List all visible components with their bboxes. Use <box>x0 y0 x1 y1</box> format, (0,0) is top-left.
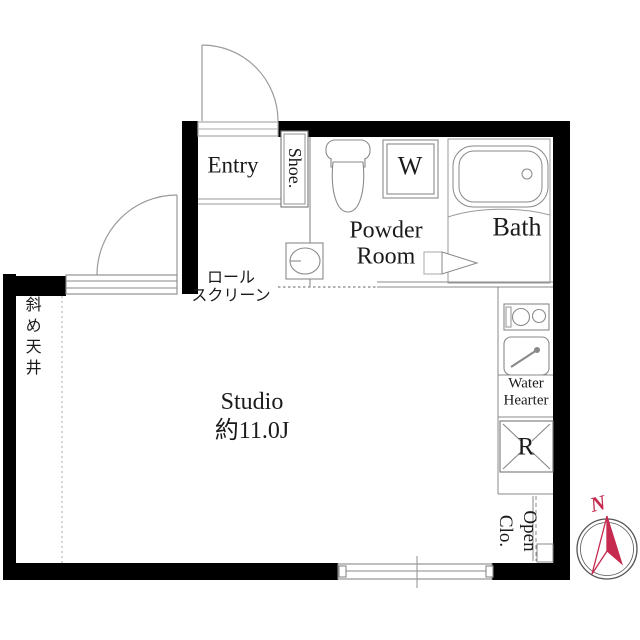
bath-label: Bath <box>492 214 541 243</box>
water-heater-label-line1: Water <box>504 376 549 393</box>
stove-burner-right <box>533 310 546 323</box>
wall-bottom-left <box>3 563 338 580</box>
bathtub-inner <box>459 151 542 202</box>
floor-plan: Entry Shoe. W Powder Room Bath Studio 約1… <box>0 0 640 640</box>
open-closet-label-line1: Open <box>517 510 541 551</box>
powder-room-label-line1: Powder <box>349 218 422 244</box>
compass-icon <box>577 516 637 579</box>
water-heater-label: Water Hearter <box>504 376 549 409</box>
toilet-tank <box>326 140 370 160</box>
toilet-icon <box>326 140 370 212</box>
refrigerator-label: R <box>518 433 535 461</box>
washing-machine-label: W <box>398 153 423 182</box>
stove-icon <box>504 304 549 330</box>
open-closet-label-line2: Clo. <box>493 510 517 551</box>
sink-icon <box>504 337 549 375</box>
compass-needle-outline <box>592 516 607 574</box>
stove-burner-left <box>513 309 530 326</box>
roll-screen-label-line2: スクリーン <box>191 288 270 306</box>
wall-bottom-right <box>492 563 570 580</box>
toilet-bowl <box>332 162 363 212</box>
window-left-frame <box>66 275 177 294</box>
entry-door-icon <box>198 45 278 136</box>
powder-room-label-line2: Room <box>349 244 422 270</box>
wall-left-top-stub <box>3 276 66 296</box>
bath-folding-door-icon <box>442 252 477 274</box>
entry-door-arc <box>202 45 278 121</box>
window-bottom <box>338 556 493 588</box>
roll-screen-label-line1: ロール <box>191 270 270 288</box>
wall-left <box>3 274 16 580</box>
studio-label-area: 約11.0J <box>215 417 289 446</box>
stove-controls <box>506 307 511 327</box>
roll-screen-label: ロール スクリーン <box>191 270 270 307</box>
sink-faucet-head <box>535 348 540 353</box>
bathtub-icon <box>453 146 548 207</box>
wall-right <box>553 121 570 580</box>
entry-step-lines <box>198 199 281 204</box>
wall-entry-left <box>182 121 198 294</box>
wall-top <box>278 121 570 137</box>
studio-label: Studio 約11.0J <box>215 388 289 446</box>
refrigerator-diag-br <box>532 452 550 469</box>
refrigerator-diag-tr <box>532 424 550 441</box>
powder-room-label: Powder Room <box>349 218 422 271</box>
studio-label-name: Studio <box>215 388 289 417</box>
slanted-ceiling-label: 斜め天井 <box>22 296 40 380</box>
shoe-cabinet-label: Shoe. <box>284 148 304 189</box>
entry-label: Entry <box>207 152 258 177</box>
bathtub-drain <box>522 169 532 179</box>
studio-door-arc <box>97 195 177 275</box>
floor-plan-drawing <box>0 0 640 640</box>
bath-door-step <box>424 252 442 274</box>
window-left-band <box>66 275 177 294</box>
window-bottom-cap-right <box>486 566 493 577</box>
washbasin-icon <box>286 243 323 279</box>
bath-room <box>424 139 550 283</box>
studio-door-icon <box>97 195 177 275</box>
open-closet-label: Open Clo. <box>493 510 541 551</box>
water-heater-label-line2: Hearter <box>504 392 549 409</box>
window-bottom-cap-left <box>339 566 346 577</box>
